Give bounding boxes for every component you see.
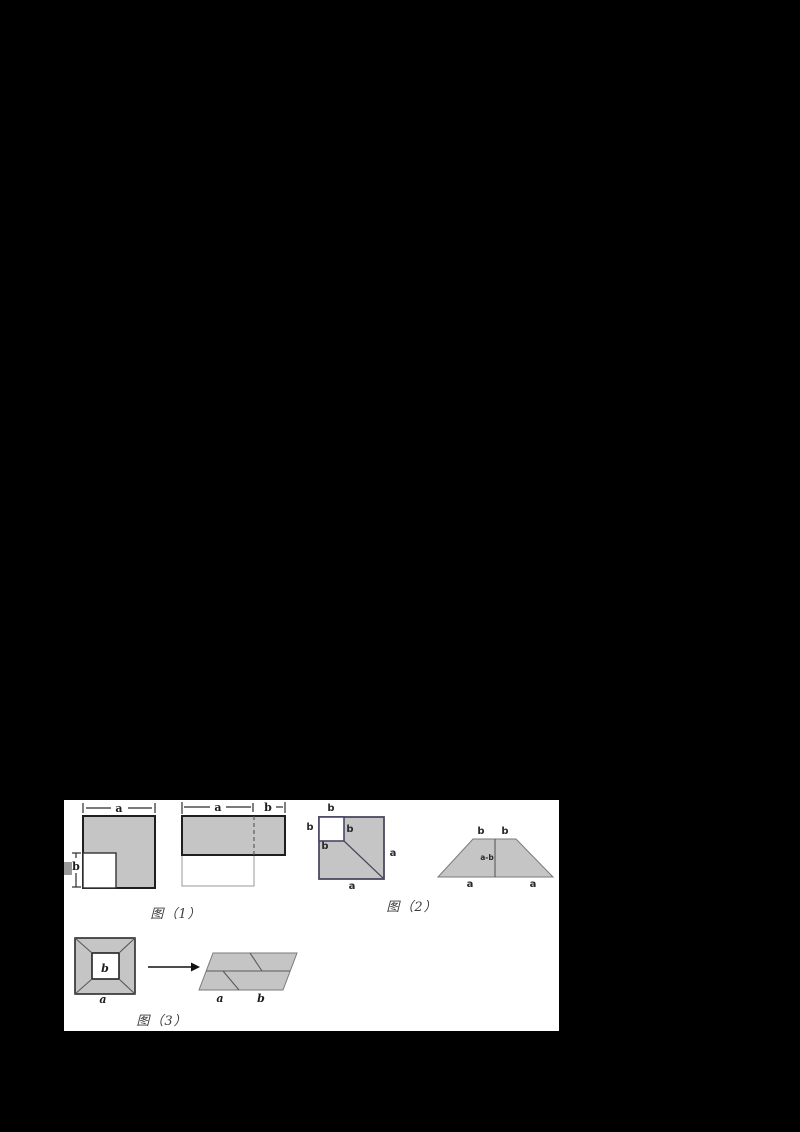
fig1-left-dim-a-label: a [115, 802, 122, 815]
fig2-label-b-top: b [327, 803, 334, 814]
trapezoid-label-a-left: a [467, 879, 474, 890]
arrow-icon [148, 963, 200, 972]
figure2-caption: 图（2） [386, 899, 437, 915]
fig2-label-a-side: a [390, 848, 397, 859]
figure1-caption: 图（1） [150, 906, 201, 922]
fig1-white-reference-rect [182, 855, 254, 886]
parallelogram-label-a: a [216, 992, 223, 1005]
fig1-white-cutout-square [83, 853, 116, 888]
trapezoid-label-b-left: b [477, 826, 484, 837]
fig3-label-b-inner: b [101, 962, 109, 975]
page-background: { "colors": { "shape_fill": "#c5c5c5", "… [0, 0, 800, 1132]
trapezoid-label-a-right: a [530, 879, 537, 890]
fig1-right-dim-b-label: b [264, 801, 272, 814]
fig2-white-corner-square [319, 817, 344, 841]
fig2-label-a-bottom: a [349, 881, 356, 892]
fig2-label-b-left: b [306, 822, 313, 833]
fig2-label-b-right: b [346, 824, 353, 835]
fig1-right-dim-a-label: a [214, 801, 221, 814]
figure3-frame-group: b a [75, 938, 135, 1006]
figure1-right-rect-group: a b [182, 801, 285, 886]
fig1-gray-rect [182, 816, 285, 855]
trapezoid-label-b-right: b [501, 826, 508, 837]
worksheet-image: a b a b [64, 800, 559, 1031]
figure3-caption: 图（3） [136, 1013, 187, 1029]
arrow-head [191, 963, 200, 972]
fig2-label-b-inner: b [321, 841, 328, 852]
figures-svg: a b a b [64, 800, 559, 1031]
figure3-parallelogram-group: a b [199, 953, 297, 1005]
scan-artifact [64, 862, 72, 875]
fig1-left-dim-b-label: b [72, 860, 80, 873]
figure2-trapezoid-group: b b a-b a a [438, 826, 553, 890]
parallelogram-label-b: b [257, 992, 265, 1005]
trapezoid-label-a-minus-b: a-b [480, 853, 494, 862]
fig3-label-a-bottom: a [99, 993, 106, 1006]
figure2-square-group: b b b b a a [306, 803, 396, 892]
figure1-left-square-group: a b [64, 802, 155, 888]
